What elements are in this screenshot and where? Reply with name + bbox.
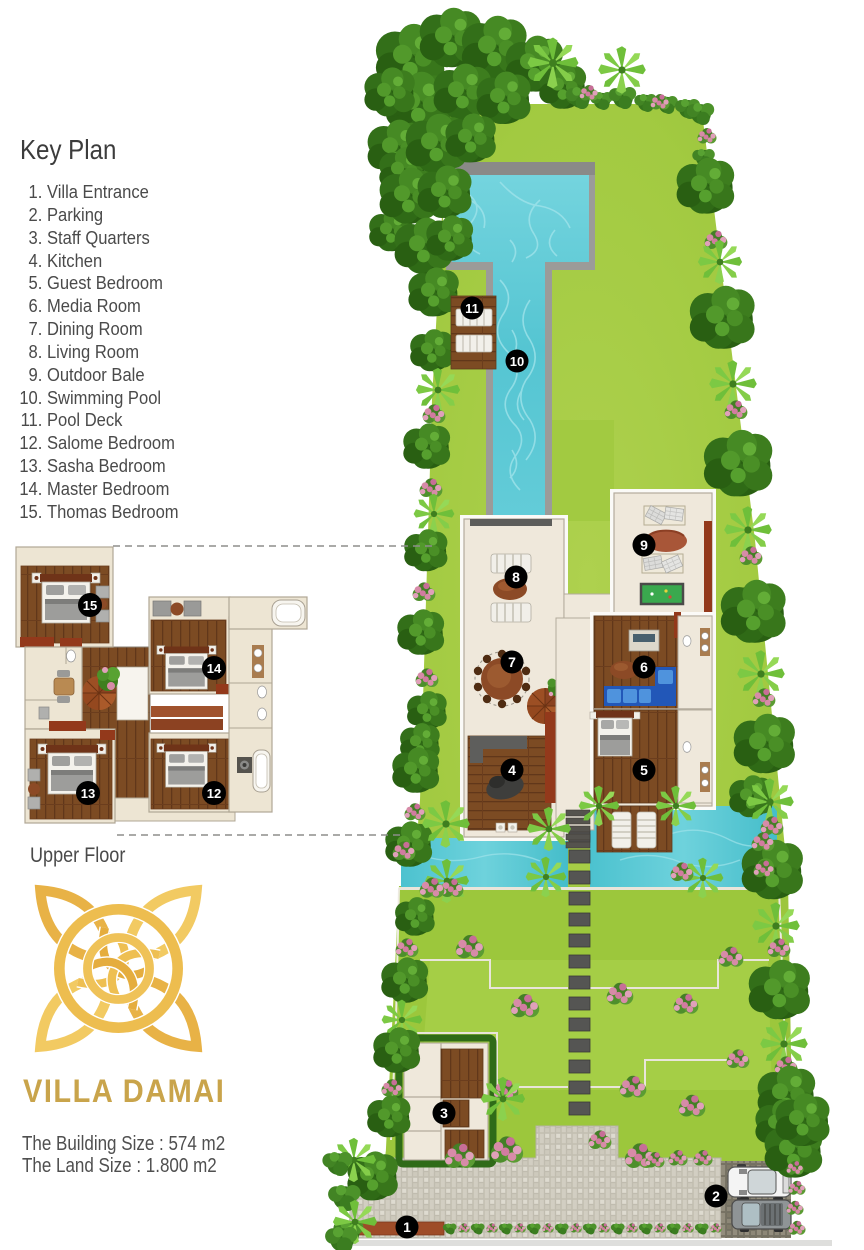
svg-text:9: 9 (640, 537, 648, 553)
svg-text:13: 13 (81, 786, 95, 801)
svg-text:8: 8 (512, 569, 520, 585)
svg-text:11: 11 (465, 301, 479, 316)
svg-text:3: 3 (440, 1105, 448, 1121)
svg-text:2: 2 (712, 1188, 720, 1204)
svg-text:4: 4 (508, 762, 516, 778)
svg-text:14: 14 (207, 661, 222, 676)
svg-text:5: 5 (640, 762, 648, 778)
svg-text:7: 7 (508, 654, 516, 670)
svg-text:15: 15 (83, 598, 97, 613)
svg-text:10: 10 (510, 354, 524, 369)
svg-text:12: 12 (207, 786, 221, 801)
svg-text:1: 1 (403, 1219, 411, 1235)
svg-text:6: 6 (640, 659, 648, 675)
